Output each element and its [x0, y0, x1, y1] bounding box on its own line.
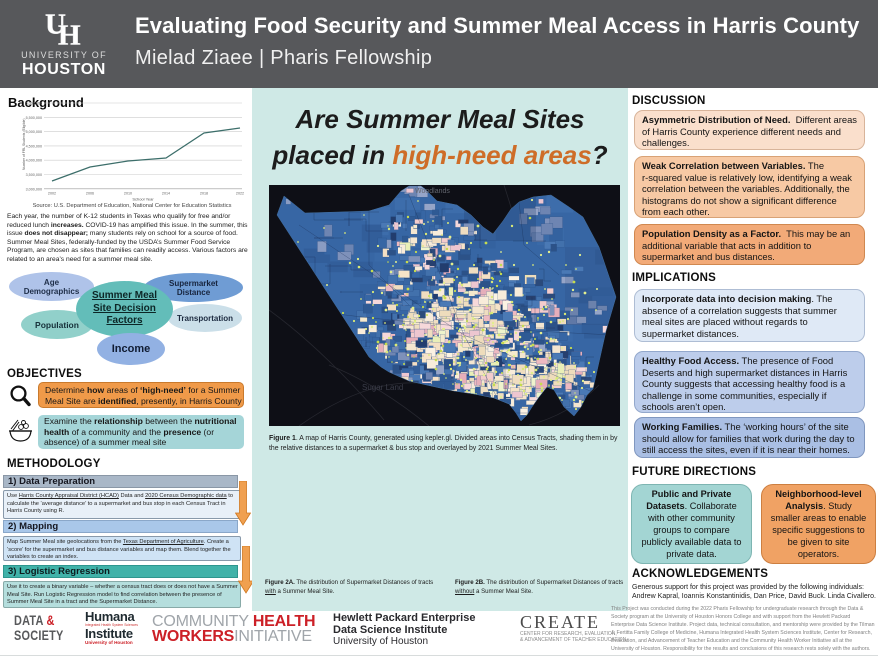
svg-text:2014: 2014: [162, 192, 170, 196]
svg-text:5,000,000: 5,000,000: [26, 130, 42, 134]
svg-text:3,500,000: 3,500,000: [26, 173, 42, 177]
svg-text:4,000,000: 4,000,000: [26, 159, 42, 163]
svg-text:Woodlands: Woodlands: [415, 188, 450, 195]
svg-text:UNIVERSITY OF: UNIVERSITY OF: [21, 50, 107, 60]
svg-text:2010: 2010: [124, 192, 132, 196]
svg-text:5,500,000: 5,500,000: [26, 116, 42, 120]
svg-text:2002: 2002: [48, 192, 56, 196]
svg-text:School Year: School Year: [132, 197, 154, 202]
svg-text:6,000,000: 6,000,000: [26, 102, 42, 106]
svg-text:Number of FRL Students (Eligib: Number of FRL Students (Eligible): [22, 118, 26, 170]
svg-text:3,000,000: 3,000,000: [26, 187, 42, 191]
svg-text:HOUSTON: HOUSTON: [22, 61, 106, 77]
svg-text:2006: 2006: [86, 192, 94, 196]
svg-text:H: H: [58, 20, 81, 52]
svg-text:Sugar Land: Sugar Land: [362, 383, 403, 392]
svg-text:2018: 2018: [200, 192, 208, 196]
svg-text:2022: 2022: [236, 192, 244, 196]
svg-text:4,500,000: 4,500,000: [26, 144, 42, 148]
